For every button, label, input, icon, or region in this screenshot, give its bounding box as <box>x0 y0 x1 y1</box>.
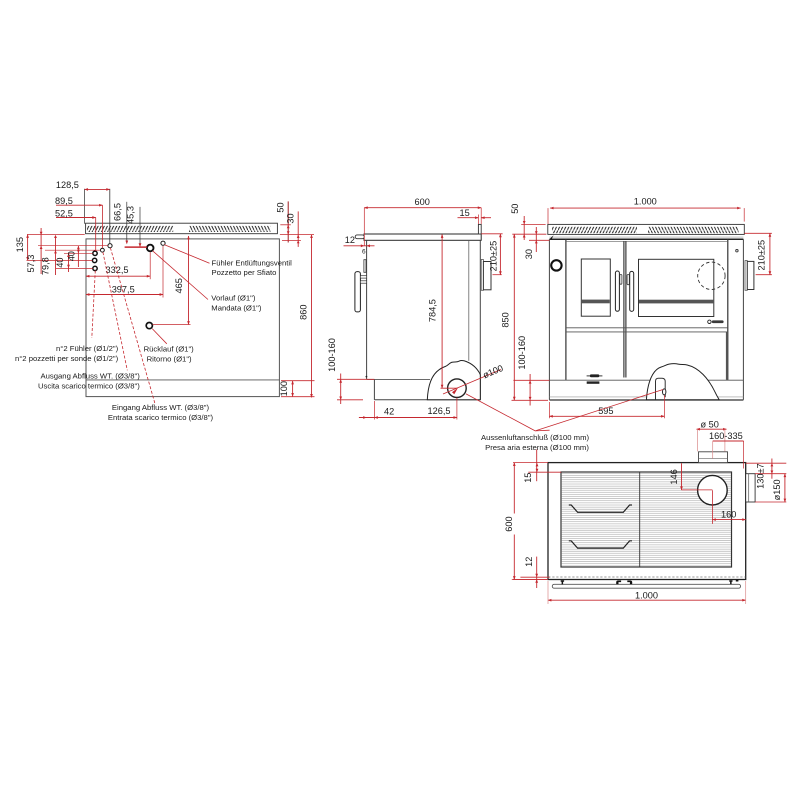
svg-text:130±7: 130±7 <box>756 463 766 488</box>
svg-text:465: 465 <box>174 278 184 293</box>
svg-text:100-160: 100-160 <box>327 338 337 372</box>
svg-text:860: 860 <box>298 305 308 320</box>
svg-text:45,3: 45,3 <box>126 206 136 224</box>
svg-text:ø150: ø150 <box>772 479 782 500</box>
svg-text:146: 146 <box>669 469 679 484</box>
svg-text:784,5: 784,5 <box>428 299 438 322</box>
svg-text:30: 30 <box>286 213 296 223</box>
svg-text:12: 12 <box>524 557 534 567</box>
svg-text:Rücklauf (Ø1"): Rücklauf (Ø1") <box>144 344 195 353</box>
svg-text:397,5: 397,5 <box>112 284 135 294</box>
svg-text:66,5: 66,5 <box>113 203 123 221</box>
svg-text:79,8: 79,8 <box>40 257 50 275</box>
svg-text:1.000: 1.000 <box>635 591 658 601</box>
svg-text:332,5: 332,5 <box>106 265 129 275</box>
svg-text:Uscita scarico termico (Ø3/8"): Uscita scarico termico (Ø3/8") <box>38 381 140 390</box>
svg-text:n°2 pozzetti per sonde (Ø1/2"): n°2 pozzetti per sonde (Ø1/2") <box>15 354 119 363</box>
svg-text:ø 50: ø 50 <box>701 420 719 430</box>
svg-text:15: 15 <box>460 208 470 218</box>
svg-text:Presa aria esterna (Ø100 mm): Presa aria esterna (Ø100 mm) <box>485 443 589 452</box>
svg-text:40: 40 <box>66 251 76 261</box>
svg-text:Mandata (Ø1"): Mandata (Ø1") <box>211 303 262 312</box>
svg-text:128,5: 128,5 <box>56 180 79 190</box>
svg-text:Vorlauf (Ø1"): Vorlauf (Ø1") <box>211 294 256 303</box>
svg-text:Fühler Entlüftungsventil: Fühler Entlüftungsventil <box>212 259 293 268</box>
svg-text:40: 40 <box>55 257 65 267</box>
svg-text:57,3: 57,3 <box>26 255 36 273</box>
svg-text:160-335: 160-335 <box>709 431 743 441</box>
svg-text:30: 30 <box>524 249 534 259</box>
svg-text:210±25: 210±25 <box>756 240 766 271</box>
svg-text:15: 15 <box>523 473 533 483</box>
svg-text:n°2 Fühler (Ø1/2"): n°2 Fühler (Ø1/2") <box>56 344 119 353</box>
svg-text:Eingang Abfluss WT. (Ø3/8"): Eingang Abfluss WT. (Ø3/8") <box>112 403 210 412</box>
svg-text:100: 100 <box>279 381 289 396</box>
svg-text:100-160: 100-160 <box>517 336 527 370</box>
svg-text:600: 600 <box>415 197 430 207</box>
svg-text:Entrata scarico termico (Ø3/8": Entrata scarico termico (Ø3/8") <box>108 413 214 422</box>
svg-text:89,5: 89,5 <box>55 196 73 206</box>
svg-text:42: 42 <box>384 407 394 417</box>
svg-text:50: 50 <box>275 202 285 212</box>
svg-text:600: 600 <box>504 516 514 531</box>
svg-text:850: 850 <box>500 312 510 327</box>
svg-text:Ausgang Abfluss WT. (Ø3/8"): Ausgang Abfluss WT. (Ø3/8") <box>41 371 141 380</box>
svg-text:135: 135 <box>15 237 25 252</box>
svg-text:12: 12 <box>345 235 355 245</box>
svg-text:50: 50 <box>510 204 520 214</box>
svg-text:210±25: 210±25 <box>489 241 499 272</box>
svg-text:52,5: 52,5 <box>55 208 73 218</box>
svg-text:Ritorno (Ø1"): Ritorno (Ø1") <box>147 354 192 363</box>
svg-text:126,5: 126,5 <box>428 406 451 416</box>
svg-text:6: 6 <box>362 249 366 256</box>
svg-text:1.000: 1.000 <box>634 197 657 207</box>
svg-text:160: 160 <box>721 510 736 520</box>
svg-text:Pozzetto per Sfiato: Pozzetto per Sfiato <box>212 268 277 277</box>
svg-text:Aussenluftanschluß (Ø100 mm): Aussenluftanschluß (Ø100 mm) <box>481 433 590 442</box>
